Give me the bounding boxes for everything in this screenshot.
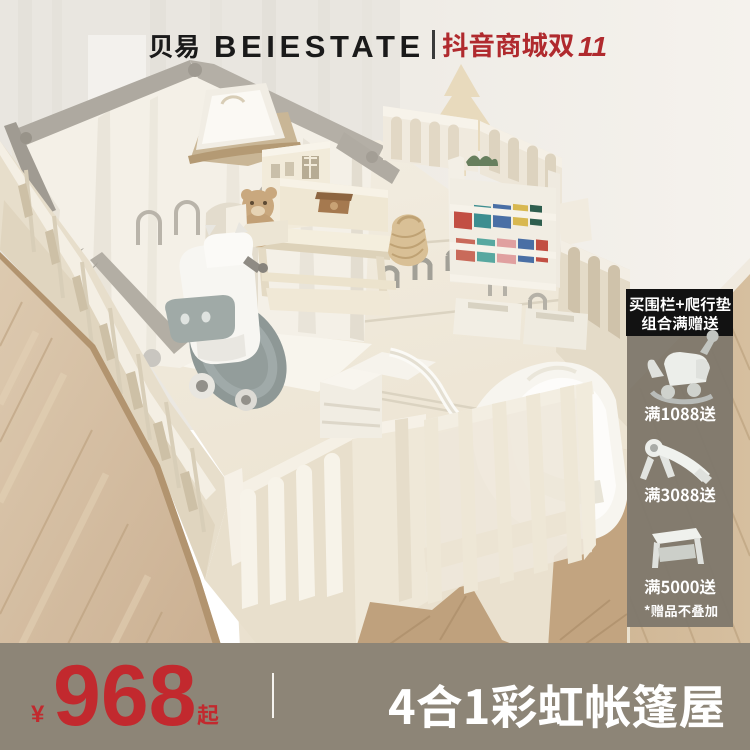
svg-text:11: 11 (578, 31, 607, 62)
svg-text:¥: ¥ (31, 701, 45, 728)
svg-text:968: 968 (53, 648, 197, 744)
svg-text:BEIESTATE: BEIESTATE (214, 29, 425, 64)
